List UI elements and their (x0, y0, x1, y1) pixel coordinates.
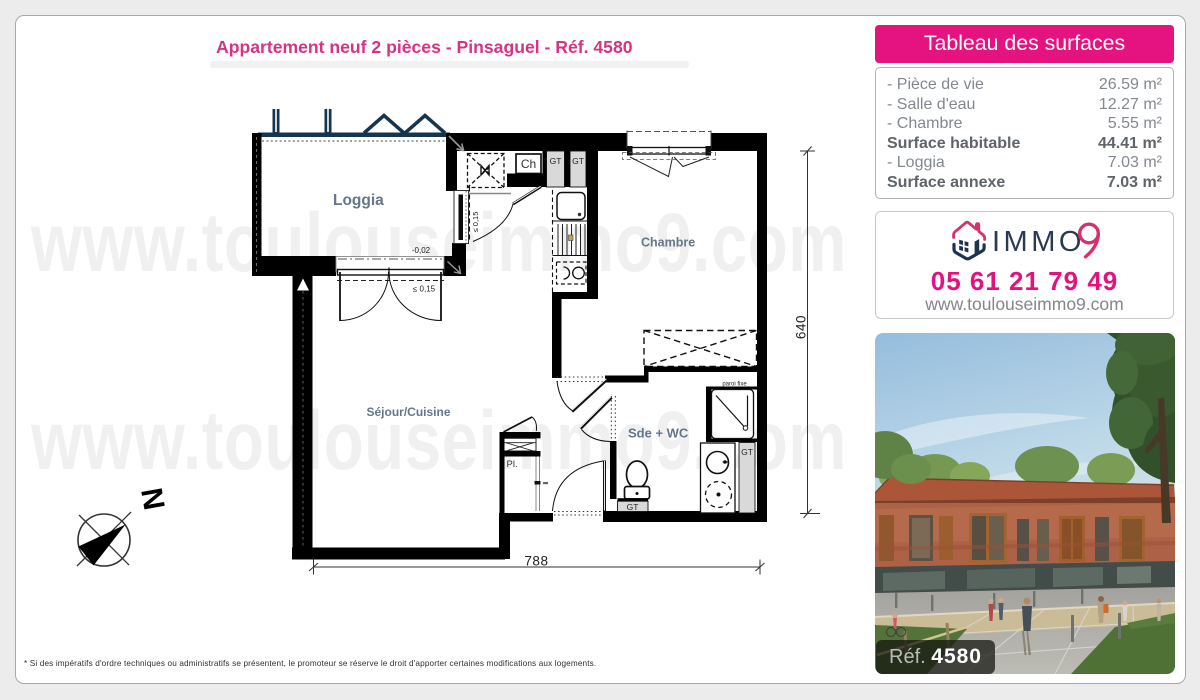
svg-text:Loggia: Loggia (333, 192, 384, 209)
svg-text:GT: GT (627, 502, 639, 512)
svg-text:640: 640 (794, 315, 809, 339)
svg-text:788: 788 (524, 554, 548, 569)
svg-text:Chambre: Chambre (641, 236, 695, 250)
svg-text:Séjour/Cuisine: Séjour/Cuisine (367, 405, 451, 419)
svg-text:GT: GT (550, 156, 562, 166)
svg-text:-0,02: -0,02 (412, 246, 431, 255)
svg-text:≤ 0,15: ≤ 0,15 (471, 212, 480, 233)
svg-text:Sde + WC: Sde + WC (628, 426, 689, 441)
svg-text:N: N (134, 485, 170, 512)
svg-text:GT: GT (741, 447, 753, 457)
svg-text:Ch: Ch (521, 157, 536, 171)
svg-text:GT: GT (572, 156, 584, 166)
svg-text:≤ 0,15: ≤ 0,15 (413, 285, 436, 294)
svg-text:Pl.: Pl. (507, 459, 518, 470)
svg-text:IMMO: IMMO (992, 226, 1085, 258)
